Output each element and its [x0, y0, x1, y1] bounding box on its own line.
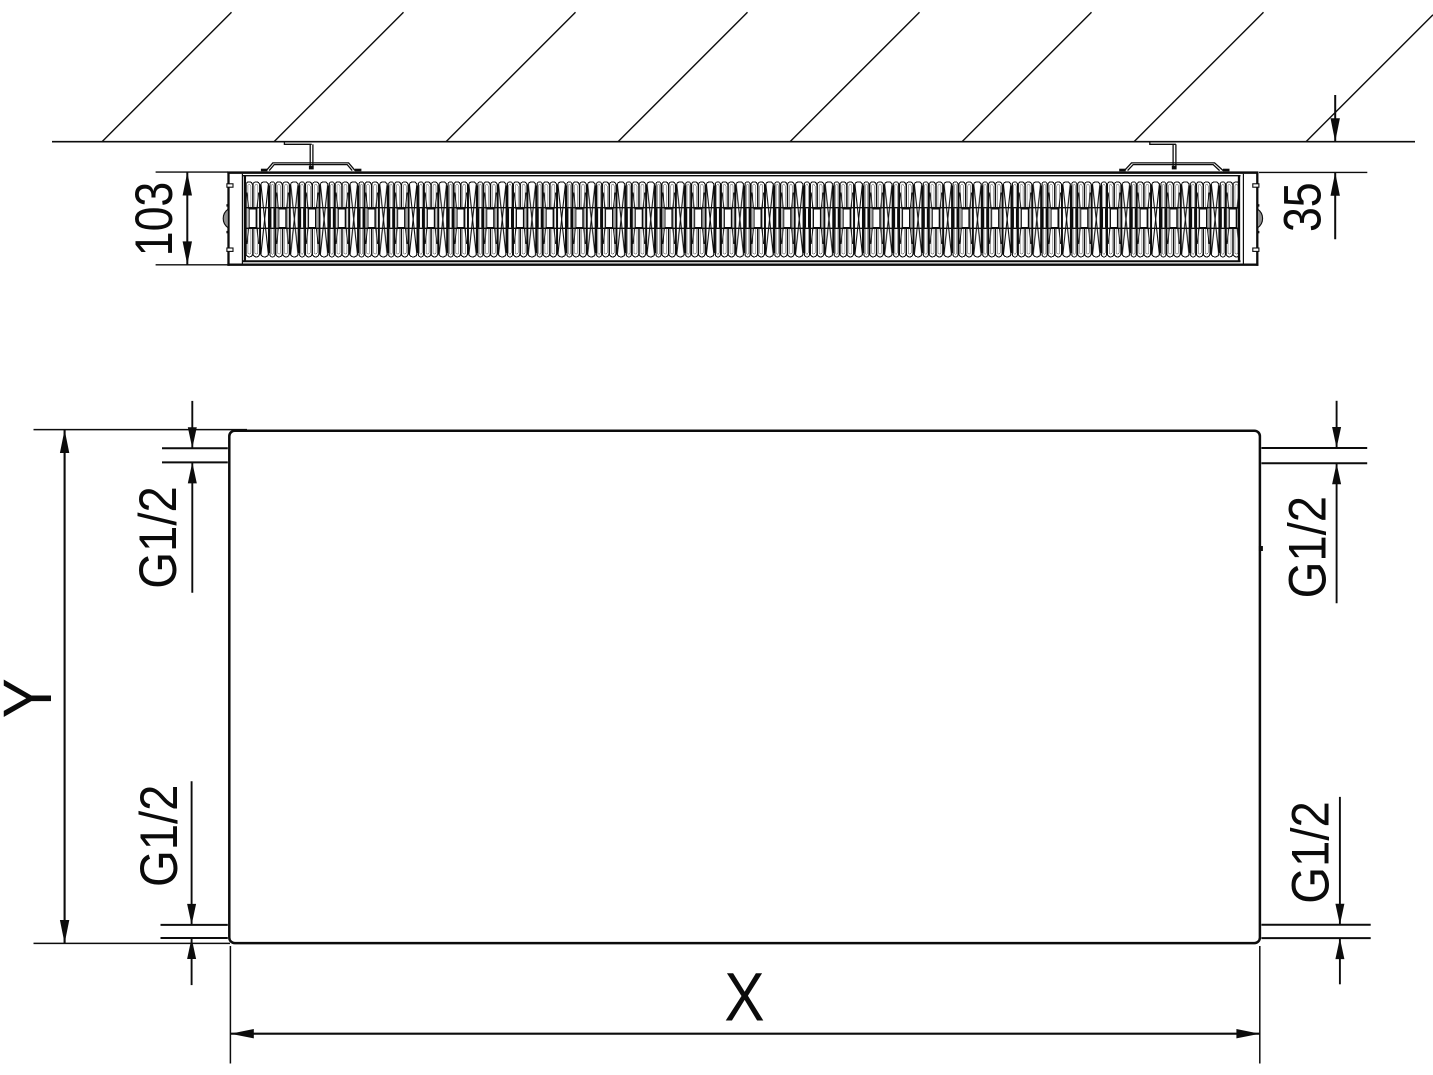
- svg-text:G1/2: G1/2: [1281, 801, 1340, 903]
- svg-text:G1/2: G1/2: [130, 785, 189, 887]
- svg-text:35: 35: [1274, 182, 1332, 232]
- svg-text:X: X: [724, 959, 764, 1035]
- svg-text:G1/2: G1/2: [129, 486, 188, 588]
- svg-text:G1/2: G1/2: [1278, 496, 1337, 598]
- svg-text:103: 103: [126, 182, 184, 256]
- svg-text:Y: Y: [0, 678, 66, 718]
